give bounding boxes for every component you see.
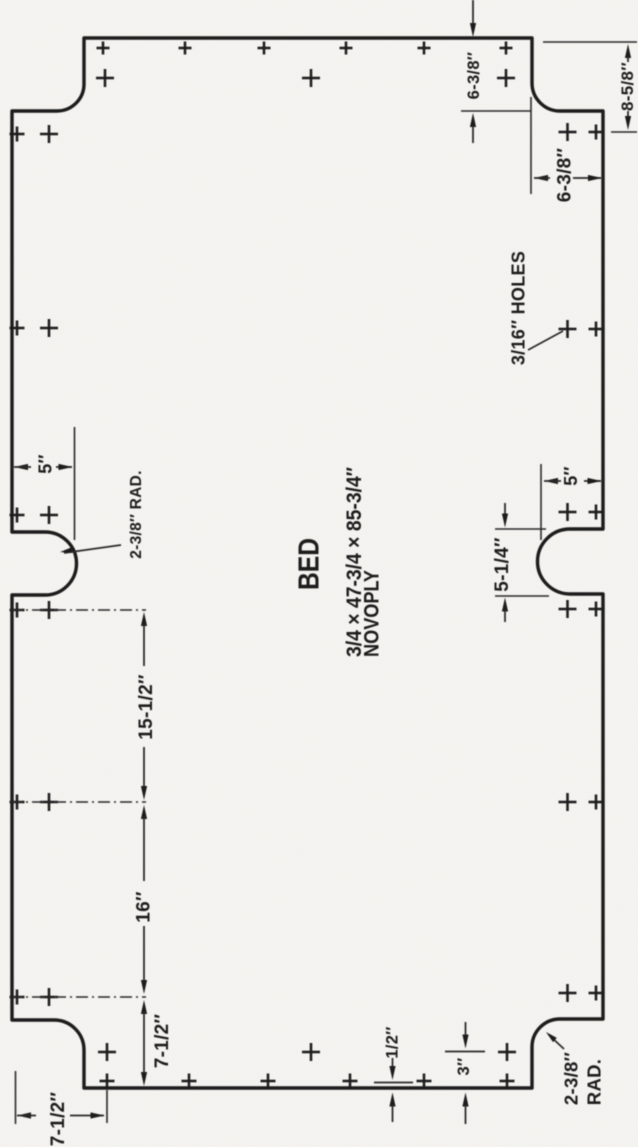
svg-text:1/2′′: 1/2′′	[384, 1026, 402, 1058]
svg-text:RAD.: RAD.	[584, 1059, 605, 1105]
svg-text:5-1/4′′: 5-1/4′′	[492, 537, 513, 592]
svg-text:15-1/2′′: 15-1/2′′	[136, 674, 157, 740]
svg-text:6-3/8′′: 6-3/8′′	[465, 52, 483, 100]
svg-text:16′′: 16′′	[134, 891, 155, 923]
svg-text:5′′: 5′′	[561, 466, 581, 486]
svg-text:3′′: 3′′	[455, 1058, 473, 1076]
svg-text:8-5/8′′: 8-5/8′′	[618, 62, 637, 111]
svg-text:6-3/8′′: 6-3/8′′	[555, 148, 576, 203]
svg-text:BED: BED	[294, 538, 326, 590]
svg-text:5′′: 5′′	[36, 454, 56, 474]
svg-text:7-1/2′′: 7-1/2′′	[48, 1092, 69, 1147]
svg-text:2-3/8′′ RAD.: 2-3/8′′ RAD.	[128, 470, 145, 559]
svg-text:NOVOPLY: NOVOPLY	[361, 570, 384, 657]
svg-text:2-3/8′′: 2-3/8′′	[561, 1052, 582, 1105]
svg-text:7-1/2′′: 7-1/2′′	[152, 1014, 173, 1069]
svg-text:3/16′′ HOLES: 3/16′′ HOLES	[509, 251, 529, 365]
